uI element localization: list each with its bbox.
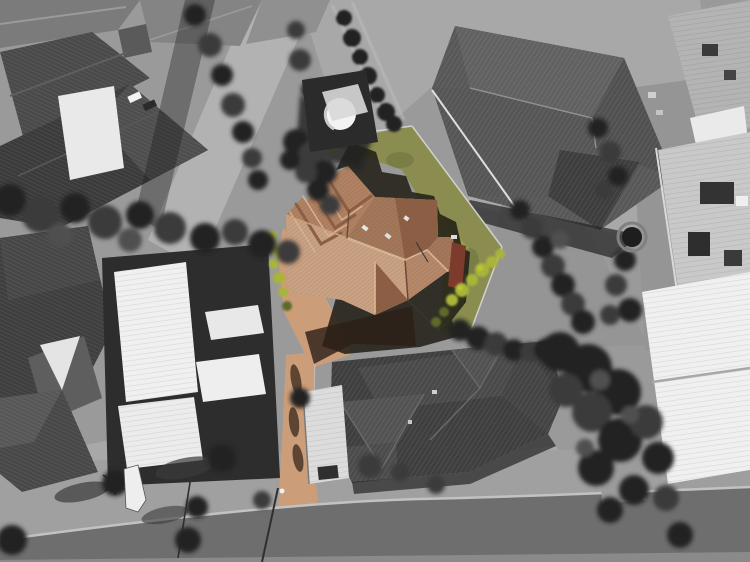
aerial-photo — [0, 0, 750, 562]
roof-unit — [648, 92, 656, 98]
white-flat-roof-main — [114, 262, 198, 402]
skylight — [408, 420, 412, 424]
pole-base — [280, 489, 285, 494]
trampoline — [618, 223, 646, 251]
left-white-buildings — [102, 244, 280, 486]
garden-unit — [451, 235, 457, 239]
parked-car — [317, 465, 338, 480]
aerial-photo-stage — [0, 0, 750, 562]
roof-unit — [656, 110, 663, 115]
skylight — [432, 390, 437, 394]
lawn-worn-patch — [386, 152, 414, 168]
white-panel — [196, 354, 266, 402]
